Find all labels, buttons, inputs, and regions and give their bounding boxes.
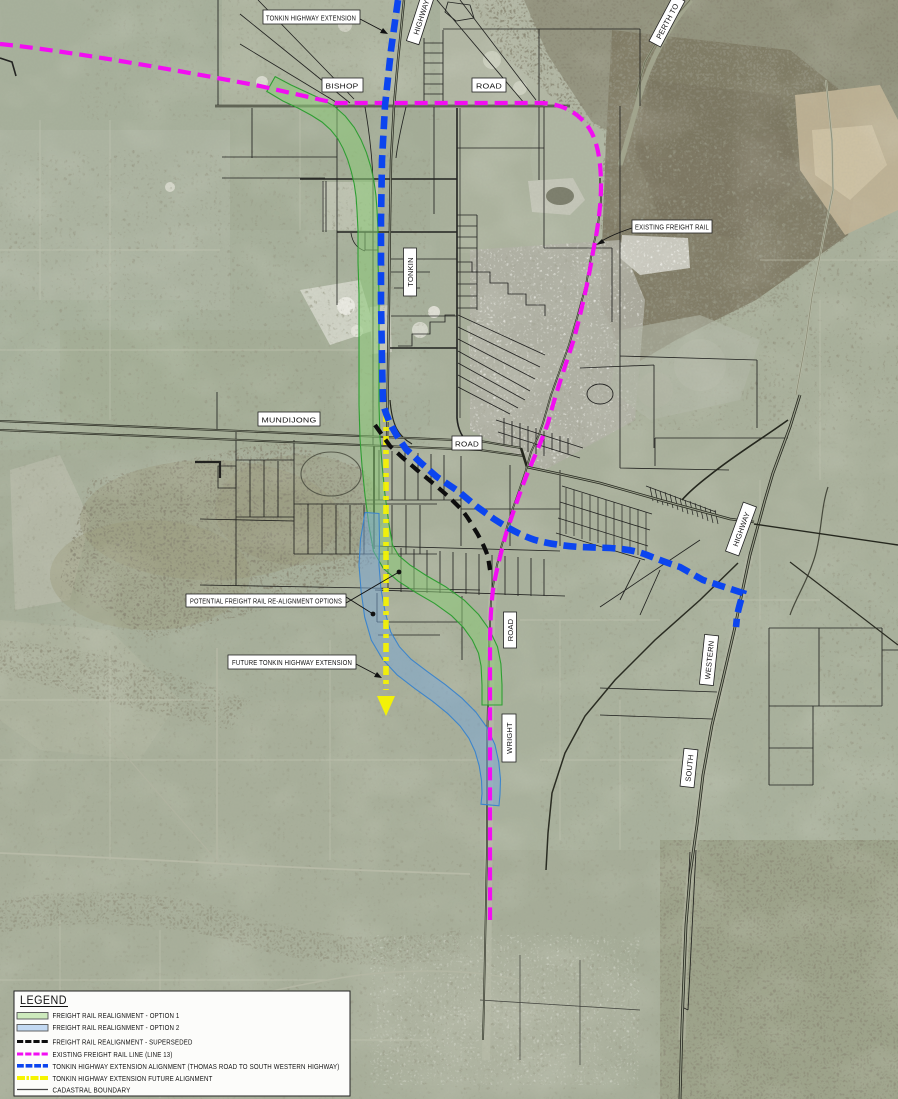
svg-text:ROAD: ROAD: [476, 82, 502, 91]
svg-text:LEGEND: LEGEND: [20, 995, 67, 1007]
svg-text:FREIGHT RAIL REALIGNMENT - OPT: FREIGHT RAIL REALIGNMENT - OPTION 1: [53, 1011, 180, 1020]
svg-text:ROAD: ROAD: [506, 618, 515, 641]
svg-text:TONKIN HIGHWAY EXTENSION FUTUR: TONKIN HIGHWAY EXTENSION FUTURE ALIGNMEN…: [53, 1074, 213, 1083]
svg-text:MUNDIJONG: MUNDIJONG: [262, 415, 317, 424]
svg-text:TONKIN: TONKIN: [406, 257, 415, 286]
svg-text:FREIGHT RAIL REALIGNMENT - OPT: FREIGHT RAIL REALIGNMENT - OPTION 2: [53, 1023, 180, 1032]
svg-text:ROAD: ROAD: [455, 439, 479, 448]
svg-text:FREIGHT RAIL REALIGNMENT - SUP: FREIGHT RAIL REALIGNMENT - SUPERSEDED: [53, 1038, 193, 1047]
svg-text:TONKIN HIGHWAY EXTENSION: TONKIN HIGHWAY EXTENSION: [266, 13, 356, 22]
svg-text:BISHOP: BISHOP: [326, 82, 359, 91]
svg-text:EXISTING FREIGHT RAIL LINE (LI: EXISTING FREIGHT RAIL LINE (LINE 13): [53, 1050, 173, 1059]
svg-text:CADASTRAL BOUNDARY: CADASTRAL BOUNDARY: [53, 1086, 131, 1095]
svg-text:WRIGHT: WRIGHT: [505, 722, 514, 754]
svg-text:POTENTIAL FREIGHT RAIL RE-ALIG: POTENTIAL FREIGHT RAIL RE-ALIGNMENT OPTI…: [190, 596, 342, 605]
svg-text:FUTURE TONKIN HIGHWAY EXTENSIO: FUTURE TONKIN HIGHWAY EXTENSION: [232, 658, 352, 667]
svg-text:EXISTING FREIGHT RAIL: EXISTING FREIGHT RAIL: [635, 222, 709, 231]
svg-text:TONKIN HIGHWAY EXTENSION ALIGN: TONKIN HIGHWAY EXTENSION ALIGNMENT (THOM…: [53, 1062, 340, 1071]
